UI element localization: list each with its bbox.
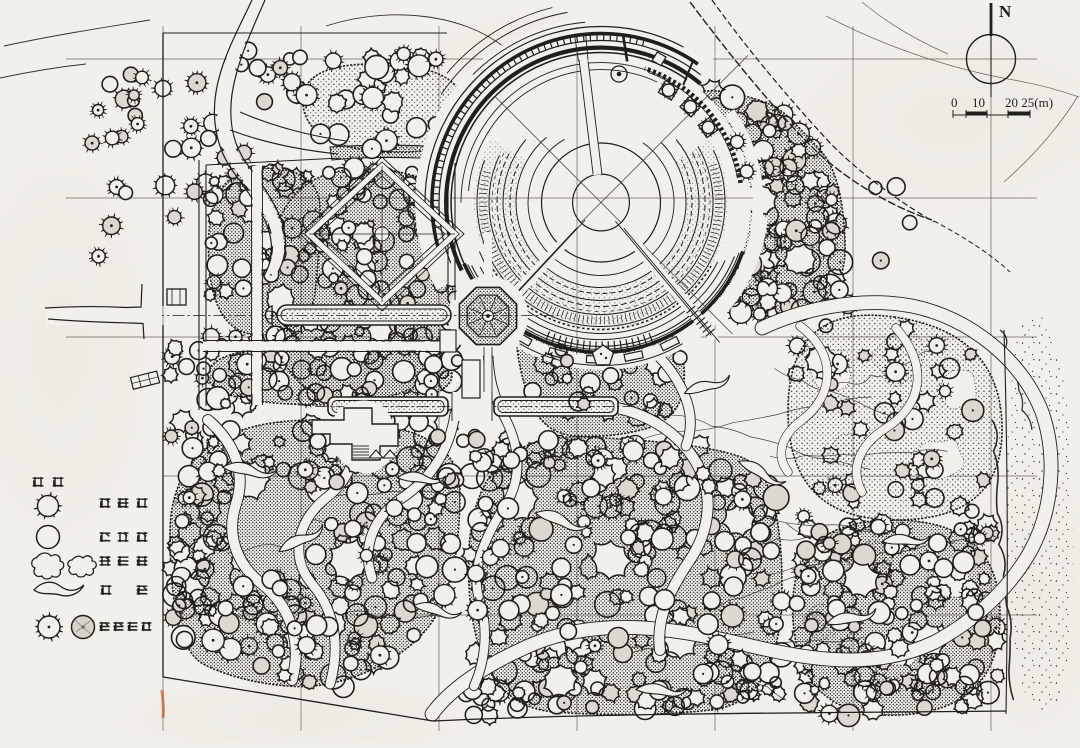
svg-text:0: 0 bbox=[951, 95, 958, 110]
svg-text:10: 10 bbox=[972, 95, 985, 110]
svg-text:20 25(m): 20 25(m) bbox=[1005, 95, 1053, 110]
svg-text:N: N bbox=[999, 2, 1012, 21]
